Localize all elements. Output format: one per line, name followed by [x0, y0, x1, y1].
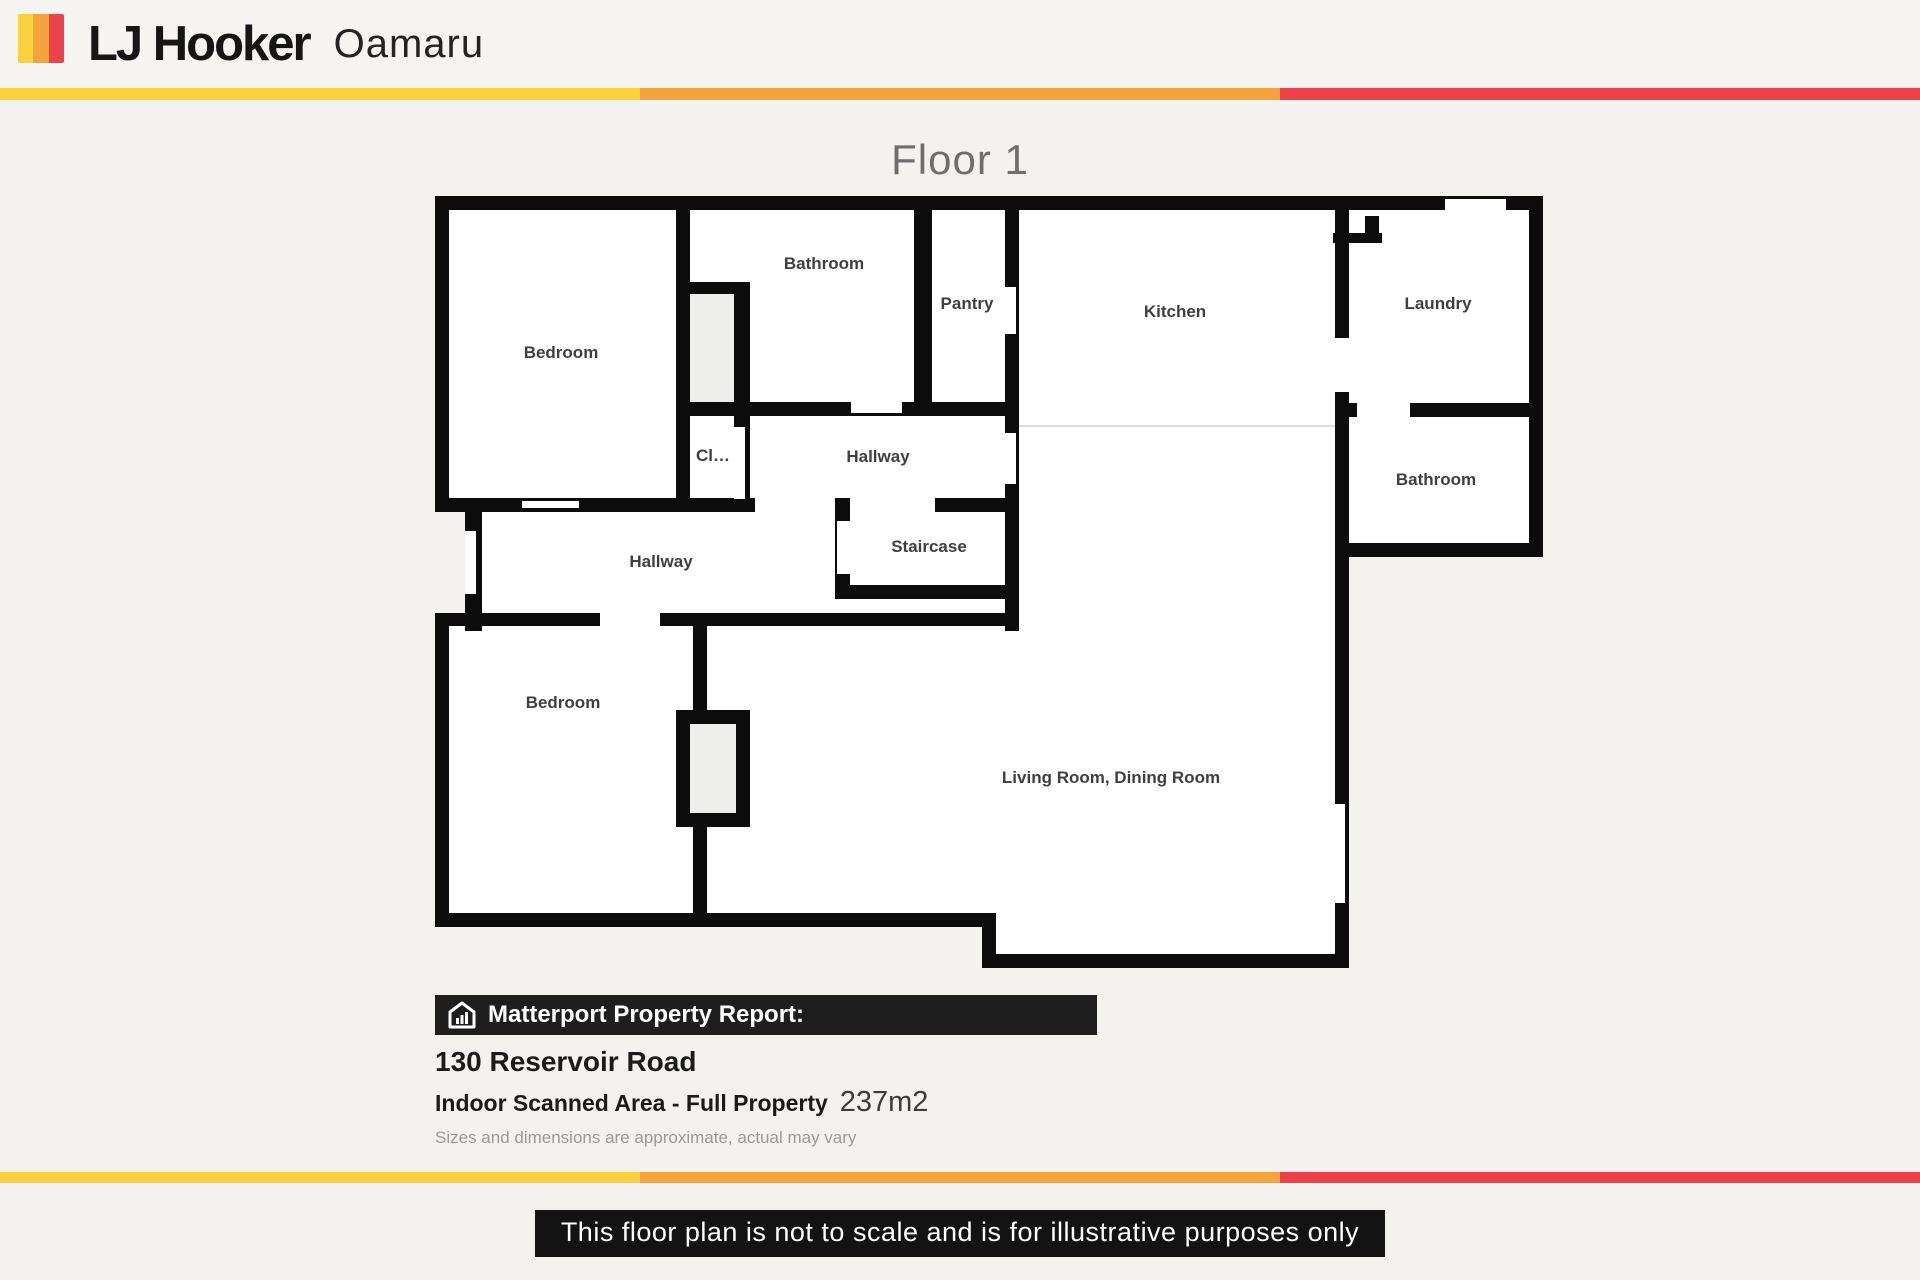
- brand-stripe-bottom: [0, 1172, 1920, 1183]
- door-gap: [1005, 433, 1016, 484]
- door-gap: [1005, 287, 1016, 334]
- room-label-kitchen: Kitchen: [1144, 302, 1206, 322]
- office-name: Oamaru: [334, 22, 485, 67]
- room-label-bathroom-right: Bathroom: [1396, 470, 1476, 490]
- room-label-hallway-upper: Hallway: [846, 447, 909, 467]
- room-label-bedroom-top: Bedroom: [524, 343, 599, 363]
- floor-area: [1335, 196, 1543, 557]
- open-plan-divider-line: [1019, 425, 1335, 427]
- door-gap: [1357, 403, 1410, 417]
- footer-notice-wrap: This floor plan is not to scale and is f…: [0, 1210, 1920, 1257]
- logo-stripe-orange: [33, 14, 48, 63]
- door-gap: [734, 427, 745, 499]
- door-gap: [600, 613, 660, 626]
- wall-segment: [676, 402, 1019, 416]
- stripe-yellow: [0, 88, 640, 100]
- room-label-pantry: Pantry: [941, 294, 994, 314]
- floor-title: Floor 1: [0, 136, 1920, 184]
- scanned-area-value: 237m2: [840, 1086, 929, 1119]
- wall-segment: [676, 196, 690, 512]
- stripe-orange: [640, 88, 1280, 100]
- logo-stripe-red: [49, 14, 64, 63]
- wall-segment: [1365, 216, 1379, 233]
- room-label-living: Living Room, Dining Room: [1002, 768, 1220, 788]
- closet-nook: [690, 294, 734, 402]
- wall-segment: [693, 827, 707, 913]
- wall-segment: [982, 954, 1349, 968]
- wall-segment: [982, 913, 996, 968]
- room-label-closet: Cl…: [696, 446, 730, 466]
- matterport-report-label: Matterport Property Report:: [488, 1001, 804, 1029]
- door-gap: [1365, 210, 1379, 216]
- wall-segment: [693, 626, 707, 713]
- ljhooker-logo-icon: [18, 14, 64, 63]
- room-label-laundry: Laundry: [1404, 294, 1471, 314]
- stripe-red: [1280, 1172, 1920, 1183]
- wall-segment: [1335, 543, 1543, 557]
- wall-segment: [914, 196, 932, 402]
- scanned-area-label: Indoor Scanned Area - Full Property: [435, 1090, 828, 1117]
- wall-segment: [835, 585, 1019, 599]
- wall-segment: [435, 913, 996, 927]
- matterport-report-bar: Matterport Property Report:: [435, 995, 1097, 1035]
- dimensions-disclaimer: Sizes and dimensions are approximate, ac…: [435, 1128, 856, 1148]
- brand-name: LJ Hooker: [88, 16, 310, 72]
- wall-segment: [1529, 196, 1543, 557]
- room-label-bedroom-lower: Bedroom: [526, 693, 601, 713]
- stripe-orange: [640, 1172, 1280, 1183]
- matterport-house-icon: [448, 1001, 476, 1029]
- wall-segment: [435, 613, 1019, 626]
- room-label-staircase: Staircase: [891, 537, 967, 557]
- wall-segment: [435, 498, 755, 512]
- window-gap: [522, 501, 579, 508]
- door-gap: [837, 521, 850, 574]
- property-address: 130 Reservoir Road: [435, 1046, 696, 1078]
- closet-nook: [690, 724, 736, 813]
- header: LJ Hooker Oamaru: [0, 0, 1920, 88]
- stripe-yellow: [0, 1172, 640, 1183]
- floor-area: [996, 512, 1349, 954]
- stripe-red: [1280, 88, 1920, 100]
- brand-stripe-top: [0, 88, 1920, 100]
- window-gap: [1335, 804, 1345, 903]
- room-label-bathroom-top: Bathroom: [784, 254, 864, 274]
- wall-segment: [435, 196, 449, 512]
- wall-segment: [435, 613, 449, 927]
- brand-lockup: LJ Hooker Oamaru: [88, 2, 484, 86]
- wall-segment: [435, 196, 1543, 210]
- window-gap: [1445, 199, 1506, 210]
- floor-plan: Bedroom Bathroom Pantry Kitchen Laundry …: [435, 196, 1545, 968]
- wall-segment: [1005, 196, 1019, 631]
- door-gap: [1335, 338, 1349, 392]
- scanned-area-line: Indoor Scanned Area - Full Property 237m…: [435, 1086, 928, 1119]
- window-gap: [465, 531, 476, 594]
- door-gap: [851, 402, 902, 413]
- logo-stripe-yellow: [18, 14, 33, 63]
- room-label-hallway-lower: Hallway: [629, 552, 692, 572]
- footer-notice: This floor plan is not to scale and is f…: [535, 1210, 1385, 1257]
